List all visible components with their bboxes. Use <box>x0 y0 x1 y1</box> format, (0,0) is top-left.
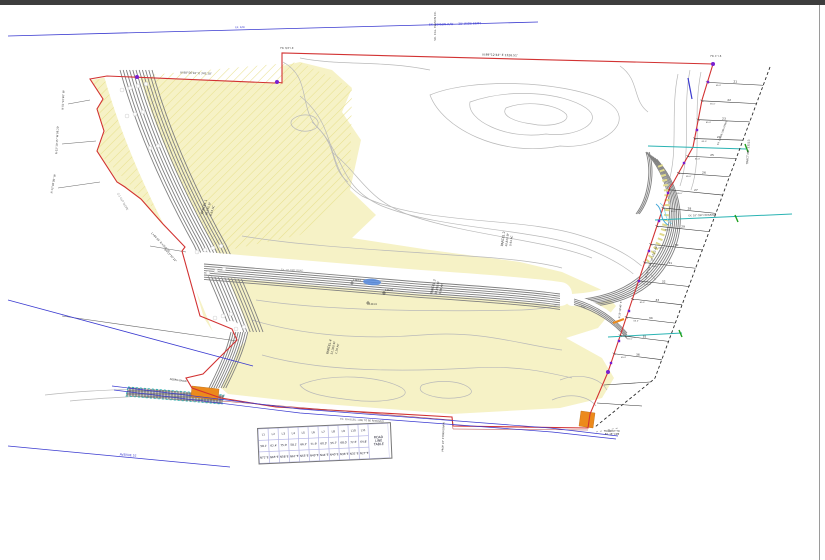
lot-number: 31 <box>668 261 672 265</box>
slope-dot <box>128 86 132 90</box>
map-label: N 02°10'15" W 98.20' <box>54 125 59 154</box>
map-label: EX. 18" CMP CROSSING <box>688 214 715 218</box>
slope-dot <box>136 84 140 88</box>
lot-grid: 2165.0'2265.0'2365.0'2465.0'2565.0'2665.… <box>613 80 764 360</box>
monument-square <box>628 310 630 312</box>
line-table-title-line: TABLE <box>374 443 384 447</box>
lot-number: 29 <box>681 225 685 229</box>
line-table-cell: 60.3' <box>318 437 328 449</box>
slope-dot <box>214 269 218 273</box>
lot-number: 25 <box>710 153 714 157</box>
monument-square <box>696 129 698 131</box>
lot-dimension: 65.0' <box>702 141 708 143</box>
slope-dot <box>144 82 148 86</box>
map-label: 1241.9 <box>369 303 377 306</box>
map-label: TRACT NO. 23113 <box>745 139 751 165</box>
map-label: FD. 1" I.P. <box>711 55 722 58</box>
line-table-cell: 58.1' <box>289 439 299 451</box>
drawing-viewport: 2165.0'2265.0'2365.0'2465.0'2565.0'2665.… <box>0 0 825 560</box>
monument-square <box>638 280 640 282</box>
slope-dot <box>203 248 207 252</box>
map-label: EX. 18" CMP <box>605 433 620 436</box>
line-table-cell: L10 <box>348 425 358 437</box>
lot-number: 27 <box>694 188 698 192</box>
band-underlay <box>572 152 670 300</box>
slope-dot <box>133 112 137 116</box>
line-table-cell: N72°E <box>259 451 269 463</box>
slope-dot <box>206 271 210 275</box>
monument-dot <box>275 80 279 84</box>
lot-number: 33 <box>655 298 659 302</box>
line-table-cell: N49°E <box>309 449 319 461</box>
lot-dimension: 65.0' <box>634 320 640 322</box>
line-table-cell: L9 <box>338 425 348 437</box>
line-table-cell: L2 <box>268 428 278 440</box>
map-label: 1242.8 <box>385 289 393 292</box>
tract-back-line <box>595 67 770 427</box>
line-table-cell: L7 <box>318 426 328 438</box>
outlet-structure <box>579 411 595 428</box>
slope-dot <box>120 88 124 92</box>
monument-square <box>683 162 685 164</box>
green-ticks <box>679 144 748 337</box>
line-table-cell: 58.1' <box>259 440 269 452</box>
line-table-cell: N65°E <box>269 451 279 463</box>
line-table-cell: 71.9' <box>308 438 318 450</box>
slope-dot <box>219 244 223 248</box>
map-label: EX. CHAIN LINK FENCE <box>717 120 729 146</box>
map-label: 2:1 CUT SLOPE <box>116 192 129 211</box>
line-table-cell: N31°E <box>349 448 359 460</box>
map-label: N 35°18'40" E <box>618 301 623 319</box>
line-table-cell: L11 <box>358 424 368 436</box>
line-table-cell: 55.7' <box>328 437 338 449</box>
slope-dot <box>221 314 225 318</box>
map-label: DEBRIS BASIN <box>169 378 186 383</box>
line-table-cell: N44°E <box>319 449 329 461</box>
lot-dimension: 65.0' <box>686 176 692 178</box>
lot-dimension: 65.0' <box>652 266 658 268</box>
lot-number: 35 <box>642 334 646 338</box>
slope-dot <box>234 327 238 331</box>
lot-dimension: 65.0' <box>627 339 633 341</box>
map-label: PROP. 24" STORM DRAIN <box>441 422 445 452</box>
lot-number: 23 <box>722 117 726 121</box>
monument-dot <box>711 62 715 66</box>
slope-dot <box>213 316 217 320</box>
lot-number: 34 <box>649 316 653 320</box>
lot-dimension: 65.0' <box>706 122 712 124</box>
map-label: SO. CAL. EDISON CO. <box>433 11 437 41</box>
slope-dot <box>211 246 215 250</box>
line-table-cell: N36°E <box>339 448 349 460</box>
site-plan-canvas: 2165.0'2265.0'2365.0'2465.0'2565.0'2665.… <box>0 0 825 560</box>
lot-dimension: 65.0' <box>671 211 677 213</box>
lot-dimension: 65.0' <box>665 229 671 231</box>
map-label: FD. 3/4" I.P. <box>280 47 293 50</box>
line-table-cell: N61°E <box>289 450 299 462</box>
monument-square <box>610 362 612 364</box>
line-table-cell: N55°E <box>299 450 309 462</box>
lot-number: 36 <box>636 353 640 357</box>
line-table: L1L2L3L4L5L6L7L8L9L10L1158.1'62.4'75.0'5… <box>257 428 397 472</box>
map-label: EX. R/W <box>235 26 245 29</box>
line-table-cell: L6 <box>308 426 318 438</box>
map-label: N 89°12'44" E 1326.51' <box>482 53 518 58</box>
lot-dimension: 65.0' <box>658 248 664 250</box>
lot-dimension: 65.0' <box>621 357 627 359</box>
line-table-cell: L3 <box>278 428 288 440</box>
slope-dot <box>222 267 226 271</box>
lot-dimension: 65.0' <box>646 284 652 286</box>
slope-dot <box>156 144 160 148</box>
slope-dot <box>229 312 233 316</box>
monument-square <box>667 192 669 194</box>
slope-dot <box>195 250 199 254</box>
lot-dimension: 65.0' <box>716 85 722 87</box>
monument-dot <box>135 75 139 79</box>
lot-dimension: 65.0' <box>695 159 701 161</box>
slope-dot <box>125 114 129 118</box>
map-label: N 12°40'00" W <box>49 174 56 194</box>
map-label: N 01°22'40" W <box>60 90 65 110</box>
slope-dot <box>148 146 152 150</box>
lot-number: 21 <box>733 80 737 84</box>
monument-square <box>707 81 709 83</box>
lot-dimension: 65.0' <box>640 302 646 304</box>
line-table-cell: 68.0' <box>338 437 348 449</box>
line-table-cell: 72.5' <box>348 436 358 448</box>
monument-square <box>658 220 660 222</box>
line-table-cell: 66.2' <box>299 438 309 450</box>
lot-number: 28 <box>688 206 692 210</box>
slope-dot <box>141 110 145 114</box>
line-table-cell: N27°E <box>359 447 369 459</box>
line-table-cell: L5 <box>298 427 308 439</box>
line-table-cell: L8 <box>328 425 338 437</box>
lot-number: 22 <box>727 98 731 102</box>
line-table-cell: N58°E <box>279 451 289 463</box>
line-table-cell: L4 <box>288 427 298 439</box>
lot-number: 32 <box>662 279 666 283</box>
map-label: Δ=13°50'22" <box>163 248 178 263</box>
lot-dimension: 65.0' <box>677 193 683 195</box>
monument-square <box>648 250 650 252</box>
lot-number: 26 <box>702 171 706 175</box>
lot-number: 30 <box>675 243 679 247</box>
line-table-grid: L1L2L3L4L5L6L7L8L9L10L1158.1'62.4'75.0'5… <box>257 422 392 464</box>
lot-dimension: 65.0' <box>710 103 716 105</box>
map-label: 1243.1 <box>353 279 361 282</box>
map-label: 0.94 AC <box>508 235 513 246</box>
monument-square <box>618 340 620 342</box>
monument-dot <box>606 370 610 374</box>
line-table-cell: 62.4' <box>269 440 279 452</box>
line-table-title: ROADLINETABLE <box>368 423 389 458</box>
line-table-cell: 64.8' <box>358 436 368 448</box>
line-table-cell: N40°E <box>329 448 339 460</box>
slope-dot <box>242 325 246 329</box>
line-table-cell: L1 <box>258 429 268 441</box>
line-table-cell: 75.0' <box>279 439 289 451</box>
